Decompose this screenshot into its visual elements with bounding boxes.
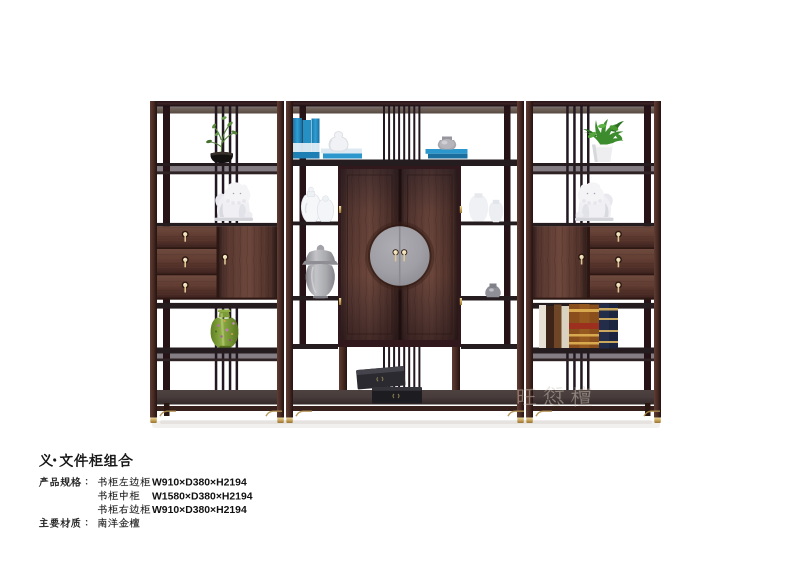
svg-text:W910×D380×H2194: W910×D380×H2194 xyxy=(152,505,247,516)
svg-text:W910×D380×H2194: W910×D380×H2194 xyxy=(152,478,247,489)
svg-text:W1580×D380×H2194: W1580×D380×H2194 xyxy=(152,491,253,502)
